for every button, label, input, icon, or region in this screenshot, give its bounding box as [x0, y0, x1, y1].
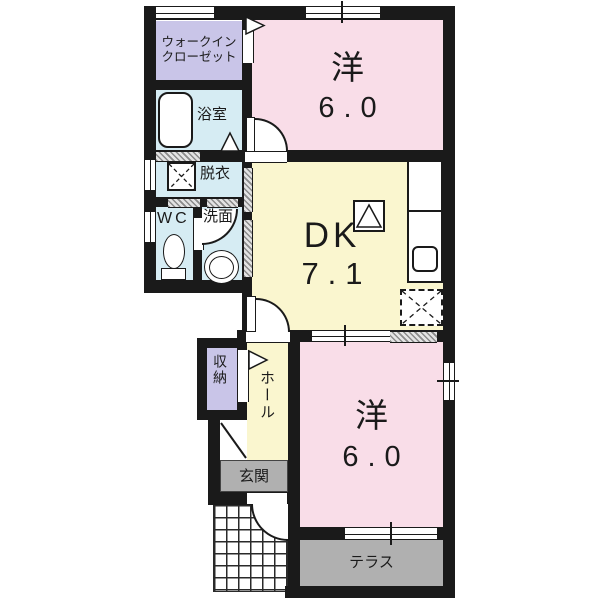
washbasin-inner-symbol	[209, 256, 234, 279]
dressing-washroom-sliding-door-right	[207, 198, 238, 208]
window-tick	[390, 522, 392, 545]
hall-door-leaf	[246, 296, 256, 332]
walk-in-closet-label: ウォークイン クローゼット	[156, 35, 242, 65]
walk-in-closet-label-line1: ウォークイン	[161, 35, 236, 49]
bathroom-label: 浴室	[197, 107, 227, 122]
entrance-label: 玄関	[220, 469, 288, 484]
closet-window	[156, 7, 214, 18]
wall-sanitary-block-bottom	[144, 280, 250, 293]
kitchen-sink-symbol	[412, 246, 438, 272]
outer-wall-right	[443, 6, 455, 598]
wc-window	[145, 212, 155, 242]
bedroom-top-door-threshold	[245, 151, 287, 163]
bedroom-top-label: 洋	[252, 51, 443, 84]
bedroom-top-window	[306, 7, 380, 18]
washing-machine-pan-symbol	[167, 162, 196, 191]
walk-in-closet-label-line2: クローゼット	[161, 50, 236, 64]
bedroom-top-size: 6.0	[252, 94, 443, 123]
bathtub-symbol	[158, 92, 193, 148]
dressing-window	[145, 160, 155, 190]
washroom-label: 洗面	[203, 209, 233, 224]
toilet-label: WC	[157, 211, 190, 227]
dk-bedroom-sliding-door	[312, 331, 390, 341]
outer-wall-bottom	[285, 586, 455, 598]
window-tick	[344, 325, 346, 346]
hall-door-threshold	[246, 331, 290, 343]
room-bedroom-bottom	[300, 342, 443, 527]
front-door-diagonal	[221, 423, 246, 458]
dk-label: DK	[252, 218, 412, 253]
terrace-label: テラス	[300, 555, 443, 570]
dk-size: 7.1	[252, 258, 412, 289]
dk-bedroom-sliding-panel	[390, 331, 437, 343]
wall-hall-bedroom-divider	[288, 330, 300, 598]
dressing-washroom-sliding-door-left	[168, 198, 200, 208]
storage-label: 収納	[213, 354, 227, 386]
dk-dressing-sliding-door	[243, 168, 253, 212]
wall-entrance-bottom	[208, 492, 248, 505]
hall-label: ホール	[259, 370, 274, 421]
toilet-tank-symbol	[161, 268, 186, 280]
window-tick	[341, 1, 343, 23]
bathroom-sliding-door	[156, 151, 200, 162]
refrigerator-space-symbol	[400, 289, 443, 326]
wall-closet-bottom	[144, 80, 252, 90]
counter-divider	[409, 210, 441, 212]
storage-door-opening	[237, 350, 249, 402]
dressing-label: 脱衣	[200, 166, 230, 181]
toilet-bowl-symbol	[163, 234, 185, 269]
bedroom-bottom-size: 6.0	[300, 443, 443, 472]
floor-plan: ウォークイン クローゼット 浴室 脱衣 WC 洗面 洋 6.0 DK 7.1 収…	[0, 0, 600, 600]
window-tick	[437, 380, 459, 382]
bedroom-bottom-label: 洋	[300, 399, 443, 432]
